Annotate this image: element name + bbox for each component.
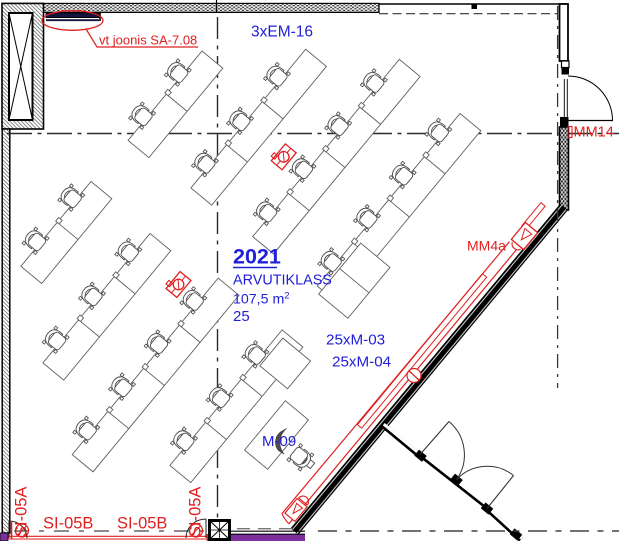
svg-text:M-09: M-09 bbox=[262, 433, 296, 450]
svg-text:2021: 2021 bbox=[233, 245, 281, 269]
svg-text:3xEM-16: 3xEM-16 bbox=[251, 24, 313, 41]
svg-text:vt joonis SA-7.08: vt joonis SA-7.08 bbox=[99, 33, 197, 48]
svg-text:25xM-04: 25xM-04 bbox=[332, 354, 391, 371]
svg-text:SI-05B: SI-05B bbox=[43, 515, 93, 533]
svg-text:25xM-03: 25xM-03 bbox=[326, 332, 385, 349]
svg-text:SI-05B: SI-05B bbox=[117, 515, 167, 533]
svg-text:25: 25 bbox=[233, 308, 250, 325]
svg-text:SI-05A: SI-05A bbox=[187, 487, 205, 537]
svg-text:SI-05A: SI-05A bbox=[13, 487, 31, 537]
svg-text:MM4a: MM4a bbox=[467, 238, 506, 254]
svg-text:ARVUTIKLASS: ARVUTIKLASS bbox=[233, 273, 332, 289]
svg-text:MM14: MM14 bbox=[574, 125, 614, 141]
svg-text:107,5 m2: 107,5 m2 bbox=[233, 291, 290, 308]
